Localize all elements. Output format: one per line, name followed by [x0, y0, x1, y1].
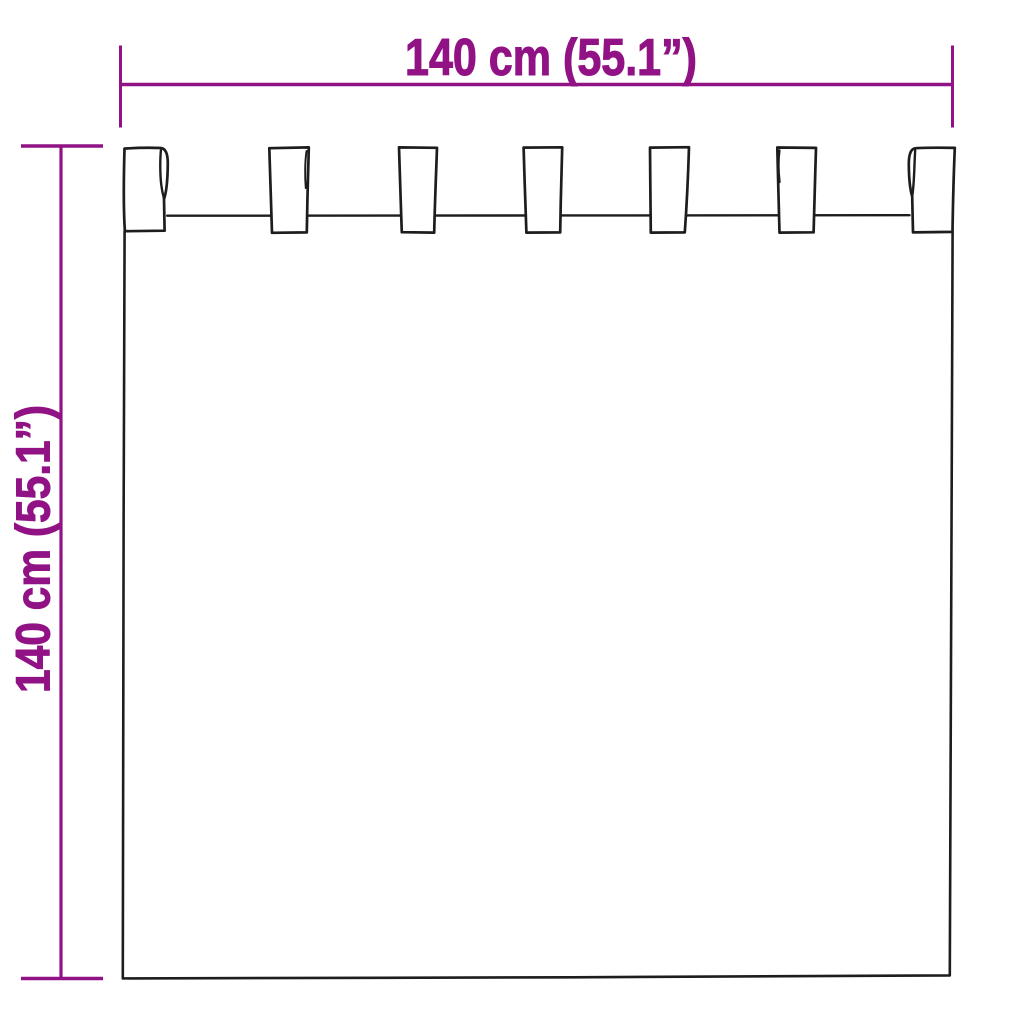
svg-text:140 cm (55.1”): 140 cm (55.1”)	[405, 29, 697, 87]
svg-text:140 cm (55.1”): 140 cm (55.1”)	[7, 405, 60, 693]
